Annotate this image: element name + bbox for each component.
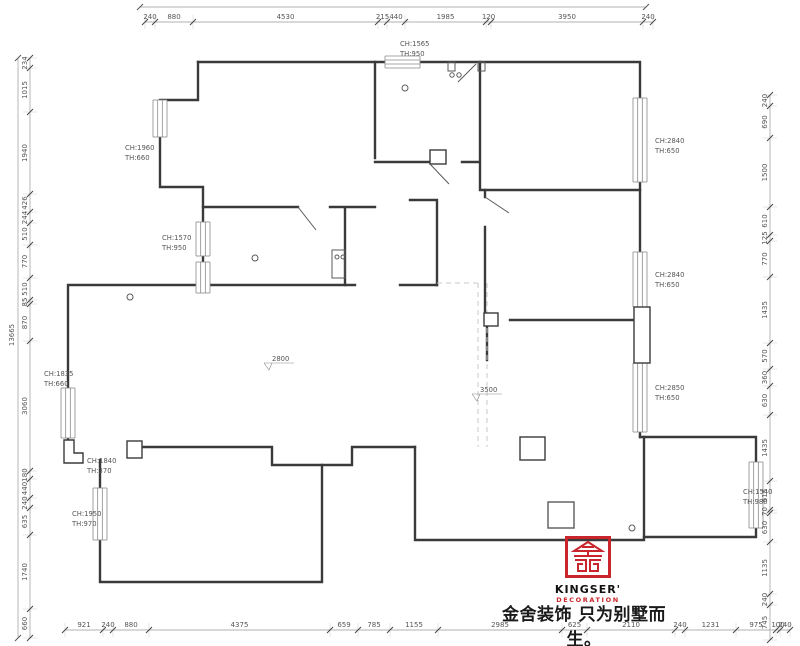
svg-text:TH:650: TH:650 <box>654 394 680 402</box>
kingser-logo: KINGSER' DECORATION <box>545 536 631 604</box>
svg-text:TH:980: TH:980 <box>742 498 768 506</box>
svg-text:690: 690 <box>761 115 769 128</box>
svg-text:CH:1835: CH:1835 <box>44 370 73 378</box>
svg-text:240: 240 <box>101 621 114 629</box>
svg-text:215: 215 <box>376 13 389 21</box>
svg-text:3950: 3950 <box>558 13 576 21</box>
svg-text:4530: 4530 <box>277 13 295 21</box>
svg-text:TH:950: TH:950 <box>399 50 425 58</box>
svg-text:880: 880 <box>167 13 180 21</box>
svg-text:240: 240 <box>21 496 29 509</box>
svg-text:1985: 1985 <box>437 13 455 21</box>
svg-text:770: 770 <box>761 252 769 265</box>
kingser-logo-icon <box>565 536 611 578</box>
dashed-lines-layer <box>437 283 487 447</box>
windows-layer <box>61 56 763 540</box>
svg-text:CH:2840: CH:2840 <box>655 137 684 145</box>
svg-text:1500: 1500 <box>761 164 769 182</box>
logo-brand-text: KINGSER' <box>545 584 631 596</box>
piers-layer <box>64 150 650 463</box>
svg-text:870: 870 <box>21 316 29 329</box>
svg-text:630: 630 <box>761 521 769 534</box>
svg-text:CH:1960: CH:1960 <box>125 144 154 152</box>
svg-text:3500: 3500 <box>480 386 497 394</box>
svg-text:85: 85 <box>21 298 29 307</box>
svg-text:CH:2840: CH:2840 <box>655 271 684 279</box>
floor-plan-svg: 2408804530215440198512039502409212408804… <box>0 0 800 646</box>
svg-text:785: 785 <box>367 621 380 629</box>
svg-text:TH:970: TH:970 <box>71 520 97 528</box>
svg-text:921: 921 <box>77 621 90 629</box>
svg-text:635: 635 <box>21 515 29 528</box>
svg-text:1940: 1940 <box>21 144 29 162</box>
svg-text:610: 610 <box>761 214 769 227</box>
svg-text:426: 426 <box>21 196 29 210</box>
svg-text:CH:1540: CH:1540 <box>743 488 772 496</box>
svg-text:1435: 1435 <box>761 439 769 457</box>
svg-text:1155: 1155 <box>405 621 423 629</box>
svg-text:70: 70 <box>761 507 769 516</box>
dimension-layer: 2408804530215440198512039502409212408804… <box>8 13 793 643</box>
svg-text:120: 120 <box>482 13 495 21</box>
svg-text:440: 440 <box>389 13 402 21</box>
svg-text:660: 660 <box>21 617 29 630</box>
svg-text:659: 659 <box>337 621 350 629</box>
floor-plan-canvas: 2408804530215440198512039502409212408804… <box>0 0 800 646</box>
svg-text:TH:650: TH:650 <box>654 147 680 155</box>
svg-text:510: 510 <box>21 227 29 240</box>
svg-text:770: 770 <box>21 255 29 268</box>
svg-text:1135: 1135 <box>761 559 769 577</box>
svg-text:240: 240 <box>143 13 156 21</box>
svg-text:1740: 1740 <box>21 563 29 581</box>
svg-text:CH:2850: CH:2850 <box>655 384 684 392</box>
svg-text:880: 880 <box>124 621 137 629</box>
svg-text:TH:950: TH:950 <box>161 244 187 252</box>
svg-text:440: 440 <box>21 482 29 495</box>
doors-fixtures-layer <box>127 62 635 531</box>
svg-text:3060: 3060 <box>21 397 29 415</box>
svg-text:1435: 1435 <box>761 301 769 319</box>
svg-text:234: 234 <box>21 56 29 70</box>
svg-text:360: 360 <box>761 371 769 384</box>
svg-text:244: 244 <box>21 210 29 224</box>
svg-text:CH:1950: CH:1950 <box>72 510 101 518</box>
svg-text:240: 240 <box>641 13 654 21</box>
svg-text:240: 240 <box>761 94 769 107</box>
svg-text:125: 125 <box>761 231 769 244</box>
svg-text:240: 240 <box>761 593 769 606</box>
svg-text:CH:1565: CH:1565 <box>400 40 429 48</box>
svg-text:CH:1840: CH:1840 <box>87 457 116 465</box>
svg-text:630: 630 <box>761 394 769 407</box>
brand-tagline: 金舍装饰 只为别墅而生。 <box>488 600 680 646</box>
svg-text:240: 240 <box>778 621 791 629</box>
svg-text:TH:650: TH:650 <box>654 281 680 289</box>
svg-text:CH:1570: CH:1570 <box>162 234 191 242</box>
svg-text:4375: 4375 <box>231 621 249 629</box>
svg-text:TH:660: TH:660 <box>124 154 150 162</box>
walls-layer <box>68 62 756 582</box>
svg-text:510: 510 <box>21 282 29 295</box>
svg-text:570: 570 <box>761 349 769 362</box>
svg-text:TH:660: TH:660 <box>43 380 69 388</box>
svg-text:2800: 2800 <box>272 355 289 363</box>
svg-text:745: 745 <box>761 616 769 629</box>
svg-text:1015: 1015 <box>21 81 29 99</box>
svg-text:180: 180 <box>21 468 29 481</box>
svg-text:13665: 13665 <box>8 324 16 346</box>
svg-text:1231: 1231 <box>702 621 720 629</box>
svg-text:TH:370: TH:370 <box>86 467 112 475</box>
